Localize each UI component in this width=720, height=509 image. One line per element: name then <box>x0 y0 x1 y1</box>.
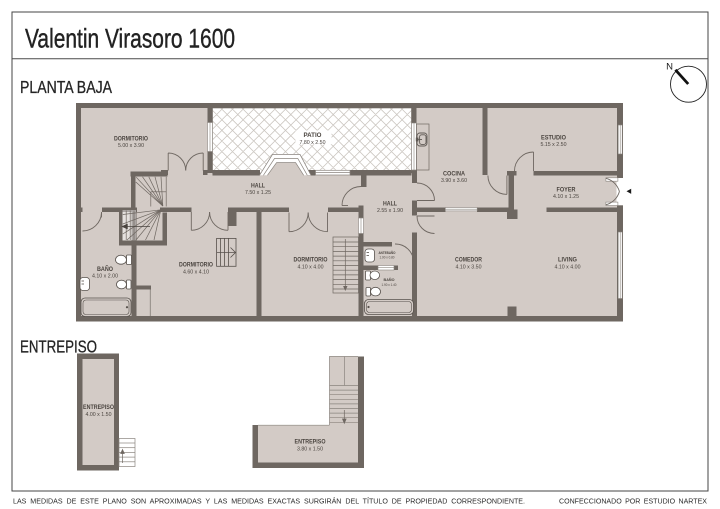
svg-text:DORMITORIO: DORMITORIO <box>179 262 213 269</box>
svg-text:3.90 x 3.60: 3.90 x 3.60 <box>441 178 467 184</box>
svg-text:N: N <box>666 61 673 72</box>
svg-text:7.50 x 1.25: 7.50 x 1.25 <box>245 190 271 196</box>
svg-text:1.90 x 0.80: 1.90 x 0.80 <box>380 256 395 260</box>
svg-text:ESTUDIO: ESTUDIO <box>541 135 566 142</box>
svg-text:Valentin Virasoro 1600: Valentin Virasoro 1600 <box>25 24 235 54</box>
svg-text:5.00 x 3.90: 5.00 x 3.90 <box>118 143 144 149</box>
svg-text:BAÑO: BAÑO <box>97 266 113 273</box>
svg-text:4.60 x 4.10: 4.60 x 4.10 <box>183 270 209 276</box>
svg-text:7.80 x 2.50: 7.80 x 2.50 <box>300 140 326 146</box>
svg-text:1.90 x 1.40: 1.90 x 1.40 <box>382 283 397 287</box>
svg-text:LIVING: LIVING <box>558 257 577 264</box>
svg-text:PLANTA BAJA: PLANTA BAJA <box>20 77 112 97</box>
svg-text:ANTEBAÑO: ANTEBAÑO <box>379 250 396 255</box>
svg-text:DORMITORIO: DORMITORIO <box>294 257 328 264</box>
svg-text:ENTREPISO: ENTREPISO <box>83 405 114 411</box>
svg-text:4.10 x 4.00: 4.10 x 4.00 <box>298 265 324 271</box>
svg-text:HALL: HALL <box>383 201 397 208</box>
svg-text:BAÑO: BAÑO <box>384 277 395 282</box>
svg-text:4.10 x 1.25: 4.10 x 1.25 <box>553 194 579 200</box>
svg-text:ENTREPISO: ENTREPISO <box>295 440 326 446</box>
svg-text:3.80 x 1.50: 3.80 x 1.50 <box>297 447 323 453</box>
svg-text:HALL: HALL <box>251 183 265 190</box>
svg-text:4.10 x 2.00: 4.10 x 2.00 <box>92 274 118 280</box>
svg-text:COCINA: COCINA <box>443 171 465 178</box>
svg-text:4.00 x 1.50: 4.00 x 1.50 <box>86 412 112 418</box>
svg-text:5.15 x 2.50: 5.15 x 2.50 <box>541 142 567 148</box>
svg-text:4.10 x 3.50: 4.10 x 3.50 <box>456 265 482 271</box>
svg-text:4.10 x 4.00: 4.10 x 4.00 <box>555 265 581 271</box>
svg-text:LAS MEDIDAS DE ESTE PLANO SON: LAS MEDIDAS DE ESTE PLANO SON APROXIMADA… <box>13 496 525 505</box>
svg-text:FOYER: FOYER <box>557 187 576 194</box>
svg-text:DORMITORIO: DORMITORIO <box>114 136 148 143</box>
svg-text:CONFECCIONADO POR ESTUDIO NART: CONFECCIONADO POR ESTUDIO NARTEX <box>559 496 707 505</box>
svg-text:PATIO: PATIO <box>304 132 322 139</box>
svg-text:COMEDOR: COMEDOR <box>455 257 482 264</box>
svg-text:2.55 x 1.90: 2.55 x 1.90 <box>377 208 403 214</box>
